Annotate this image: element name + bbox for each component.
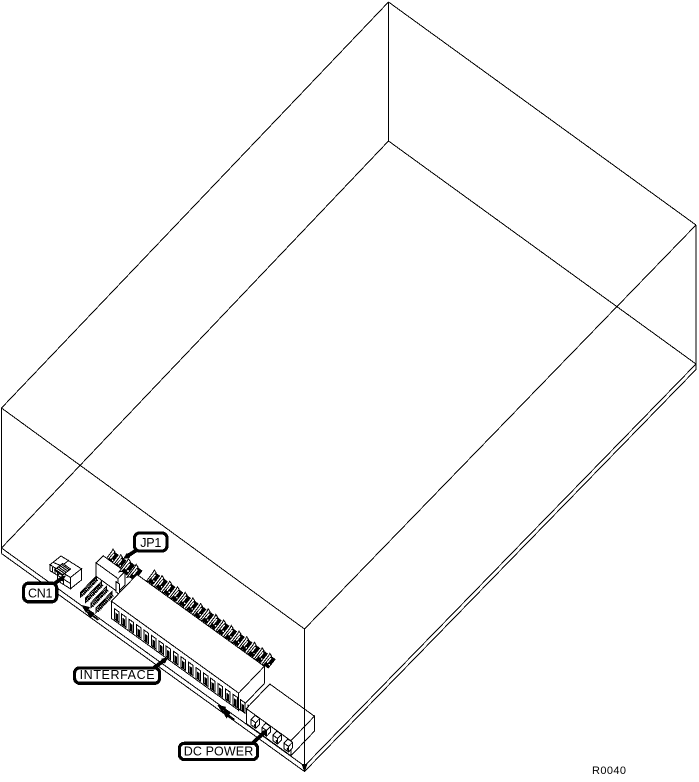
svg-text:R0040: R0040 bbox=[592, 765, 626, 777]
svg-text:INTERFACE: INTERFACE bbox=[80, 668, 155, 682]
svg-text:CN1: CN1 bbox=[28, 587, 53, 601]
svg-text:DC POWER: DC POWER bbox=[184, 744, 254, 758]
svg-text:JP1: JP1 bbox=[140, 536, 161, 550]
